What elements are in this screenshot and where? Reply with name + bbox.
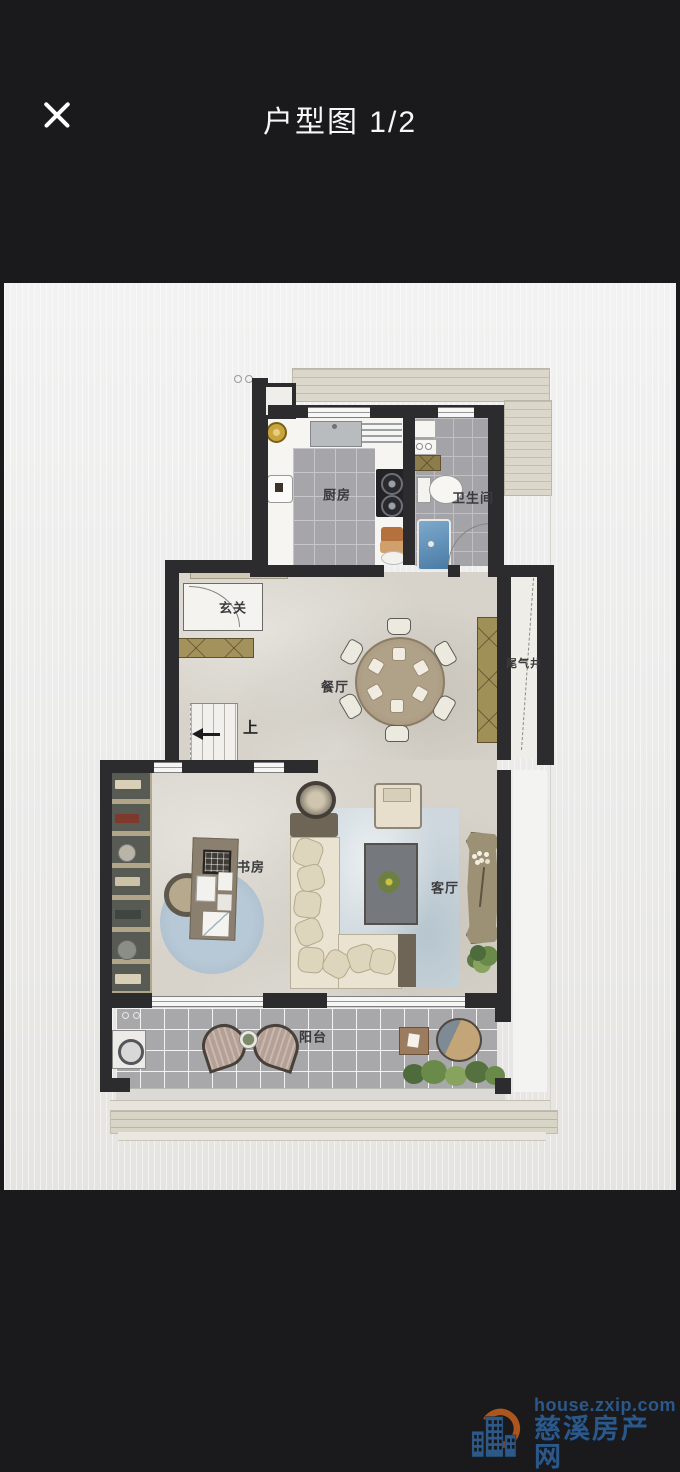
wall [497, 770, 511, 1008]
terrace-step [110, 1110, 558, 1134]
wall [465, 993, 511, 1008]
bookshelf [108, 770, 152, 1000]
survey-mark [133, 1012, 140, 1019]
coffee-machine-detail [275, 483, 283, 492]
place-setting [392, 647, 406, 661]
desk-tray [203, 850, 232, 875]
coffee-table-plant [378, 871, 400, 893]
shoe-cabinet [176, 638, 254, 658]
living-window [152, 996, 263, 1007]
place-setting [390, 699, 404, 713]
study-desk [189, 837, 239, 941]
dining-chair [385, 725, 409, 742]
books [115, 780, 141, 789]
wall [165, 560, 268, 573]
wall [100, 760, 318, 773]
books [115, 910, 141, 919]
balcony-shrubs [403, 1058, 505, 1088]
console-flowers [477, 851, 482, 856]
window [254, 762, 284, 773]
wall [495, 1078, 511, 1094]
wall [165, 560, 179, 760]
wall [100, 1078, 130, 1092]
watermark-logo-icon [470, 1405, 527, 1463]
sink-knob [425, 443, 432, 450]
gas-stove [376, 469, 406, 517]
room-label-balcony: 阳台 [299, 1027, 327, 1046]
floor-mat [399, 1027, 429, 1055]
sofa-pillow [292, 889, 322, 919]
stairs-arrow-head [192, 728, 203, 740]
kitchen-sink-faucet [332, 424, 337, 429]
books [115, 814, 139, 823]
bath-cabinet [413, 455, 441, 471]
floor-plant [470, 945, 486, 961]
dish-rack [362, 423, 402, 443]
stove-burner [381, 495, 403, 517]
washing-machine [112, 1030, 146, 1069]
stove-burner [381, 473, 403, 495]
bathtub [417, 519, 451, 571]
room-label-living: 客厅 [431, 878, 459, 897]
laptop [196, 875, 217, 902]
kitchen-tile-floor [293, 448, 377, 565]
note [407, 1033, 420, 1047]
vase [118, 844, 136, 862]
vase [117, 940, 137, 960]
round-side-stool [296, 781, 336, 819]
armchair [374, 783, 422, 829]
wall [100, 760, 112, 1092]
watermark: house.zxip.com 慈溪房产网 [470, 1400, 676, 1468]
room-label-foyer: 玄关 [219, 598, 247, 617]
tv-console [466, 832, 500, 944]
washer-drum [118, 1039, 144, 1065]
watermark-site-name: 慈溪房产网 [534, 1415, 676, 1472]
floor-plan-image[interactable]: 厨房 卫生间 玄关 餐厅 尾气井 上 书房 客厅 阳台 [4, 283, 676, 1190]
tub-faucet [428, 541, 434, 547]
survey-mark [122, 1012, 129, 1019]
books [115, 877, 140, 886]
paper [218, 872, 233, 890]
room-label-exhaust-shaft: 尾气井 [506, 655, 542, 671]
room-label-dining: 餐厅 [321, 677, 349, 696]
rattan-chair [436, 1018, 482, 1062]
dining-chair [387, 618, 411, 635]
armchair-back [383, 788, 411, 802]
sofa-pillow [297, 946, 325, 974]
bathroom-window [438, 407, 474, 418]
watermark-site-url: house.zxip.com [534, 1396, 676, 1415]
wall [448, 565, 460, 577]
water-heater [414, 420, 436, 438]
survey-mark [234, 375, 242, 383]
wall [488, 405, 504, 565]
paper [217, 894, 232, 910]
kitchen-counter-left [268, 448, 294, 565]
terrace-roof-band [292, 368, 550, 402]
room-label-bathroom: 卫生间 [452, 488, 494, 507]
sofa-arm [398, 934, 416, 987]
room-label-study: 书房 [237, 857, 265, 876]
window [154, 762, 182, 773]
wall [403, 418, 415, 565]
terrace-step [118, 1132, 546, 1141]
stairs-arrow-bar [202, 733, 220, 736]
terrace-roof-side [504, 400, 552, 496]
kitchen-window [308, 407, 370, 418]
notepad [202, 912, 229, 937]
wall [250, 565, 384, 577]
wall [495, 1008, 511, 1022]
living-window [327, 996, 465, 1007]
wall [100, 993, 152, 1008]
right-light-strip [513, 770, 547, 1092]
stairs-up-label: 上 [243, 717, 259, 738]
cooking-pot [266, 422, 287, 443]
wall [263, 993, 327, 1008]
plant-table [239, 1030, 258, 1049]
shrub [421, 1060, 447, 1084]
page-title: 户型图 1/2 [0, 97, 680, 141]
room-label-kitchen: 厨房 [323, 485, 351, 504]
books [115, 974, 141, 984]
shrub [445, 1066, 467, 1086]
sink-knob [416, 443, 423, 450]
